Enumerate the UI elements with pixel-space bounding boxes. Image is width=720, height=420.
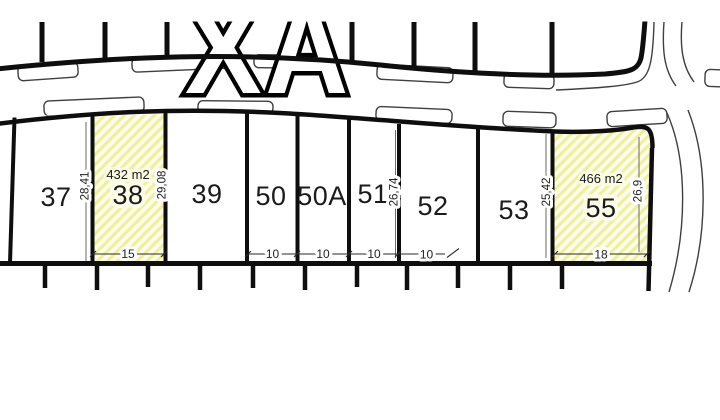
dim-50A-width: 10 <box>316 247 330 261</box>
dim-38-width: 15 <box>121 247 135 261</box>
plot-55-label: 55 <box>585 193 616 223</box>
site-plan-drawing: XA <box>0 0 720 420</box>
dim-38-left-depth: 28,41 <box>80 172 92 201</box>
plot-38-area: 432 m2 <box>106 167 149 182</box>
dim-53-right-depth: 25,42 <box>541 178 553 207</box>
cadastral-map-svg: XA <box>0 0 720 420</box>
dim-55-width: 18 <box>594 248 608 262</box>
right-road-edge-line <box>688 110 703 292</box>
plot-51-label: 51 <box>357 179 388 209</box>
plot-55-area: 466 m2 <box>579 171 622 186</box>
top-crop-mask <box>0 0 720 22</box>
plot-50A-label: 50A <box>297 181 347 211</box>
right-road-edge-line <box>667 113 683 292</box>
dim-50-width: 10 <box>266 247 280 261</box>
dim-55-right-depth: 26,9 <box>633 180 645 202</box>
plot-50-label: 50 <box>255 181 286 211</box>
sidewalk-line <box>663 22 676 86</box>
dim-51-right-depth: 26,74 <box>389 177 401 206</box>
plot-39-label: 39 <box>191 179 222 209</box>
sidewalk-line <box>681 22 694 82</box>
dim-52-width: 10 <box>420 248 434 262</box>
plot-38-label: 38 <box>112 180 143 210</box>
dim-38-right-depth: 29,08 <box>157 171 169 200</box>
plot-52-label: 52 <box>417 191 448 221</box>
plot-53-label: 53 <box>498 195 529 225</box>
dim-51-width: 10 <box>367 247 381 261</box>
plot-37-label: 37 <box>40 182 71 212</box>
lower-row-ticks <box>45 266 562 291</box>
